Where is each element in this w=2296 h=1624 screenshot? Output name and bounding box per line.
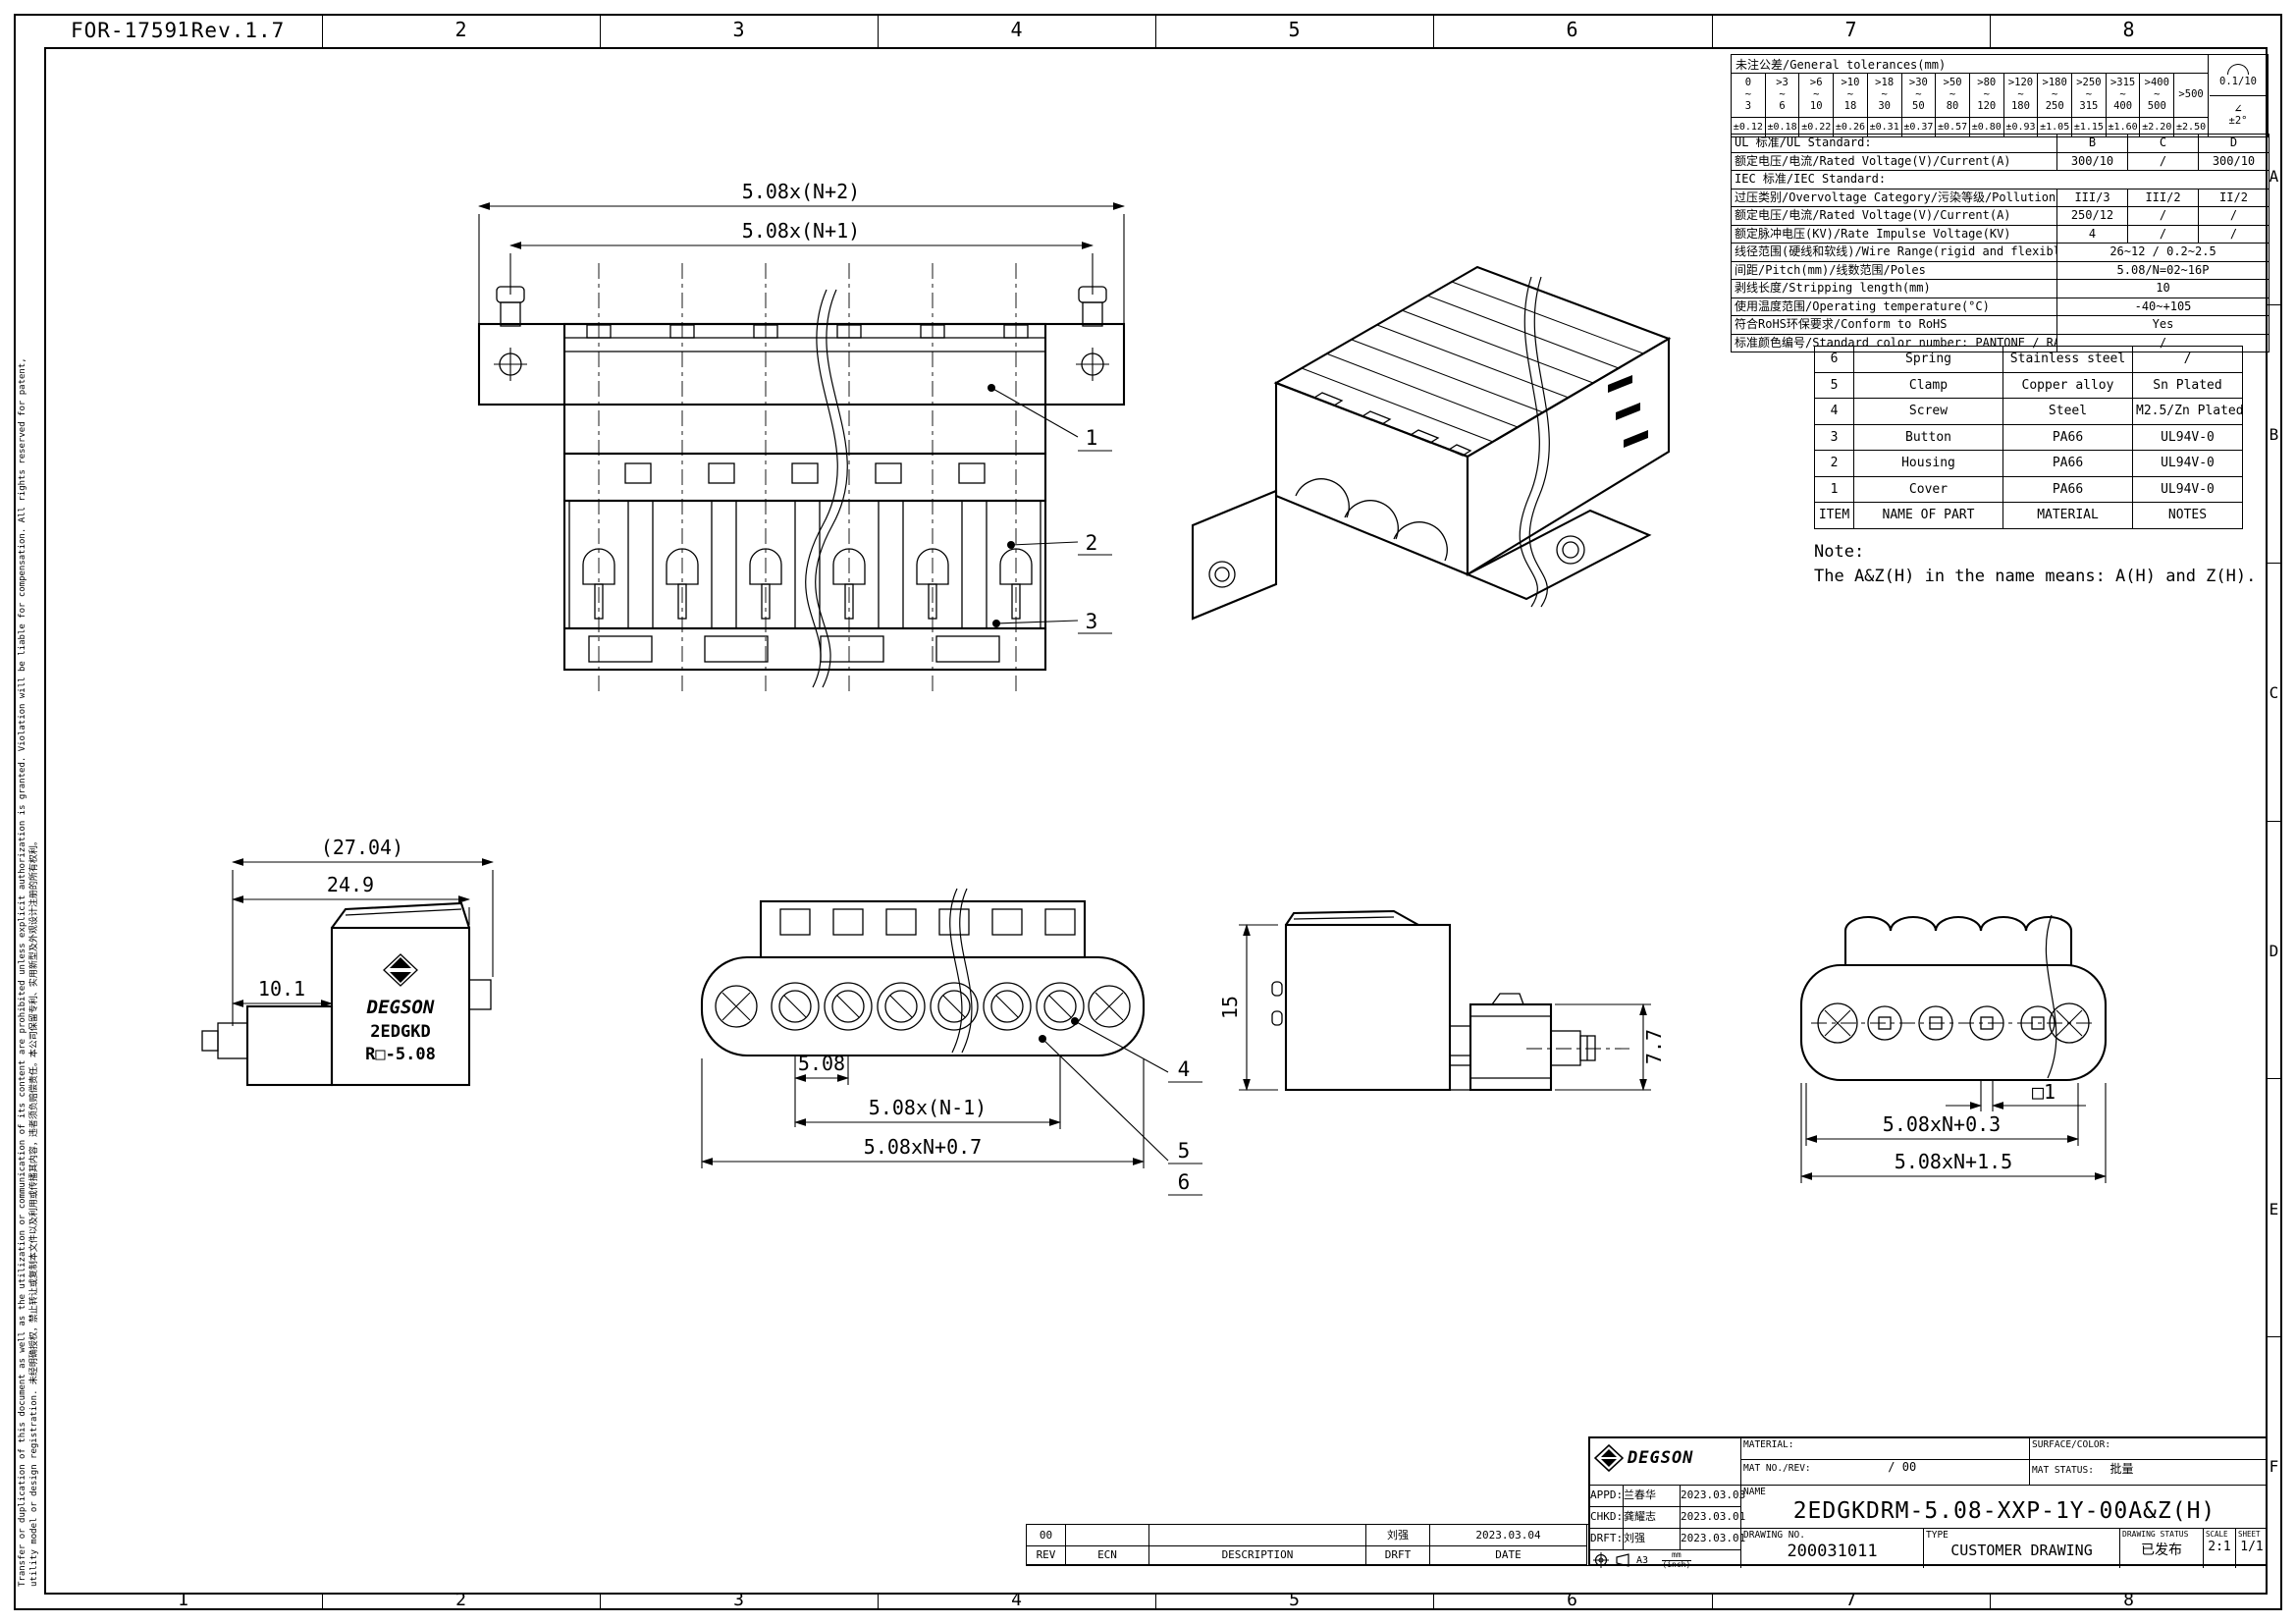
flatness-value: 0.1/10 [2219,76,2257,87]
appd-date: 2023.03.03 [1681,1486,1741,1507]
part-name: Housing [1854,451,2003,477]
angle-cell: ∠ ±2° [2210,96,2267,135]
row-label: D [2266,822,2282,1080]
column-label: 7 [1712,18,1990,43]
part-material: Stainless steel [2003,347,2133,373]
general-tolerance-table: 未注公差/General tolerances(mm) 0.1/10 ∠ ±2° [1731,54,2269,137]
ecn-header: ECN [1066,1546,1149,1565]
projection-cell: A3 mm (inch) [1590,1550,1741,1568]
name-label: NAME [1741,1486,2268,1498]
spec-label: 线径范围(硬线和软线)/Wire Range(rigid and flexibl… [1732,244,2057,262]
spec-value: Yes [2057,316,2269,335]
sheet-label: SHEET [2236,1529,2268,1540]
tol-range: >3 ~ 6 [1765,74,1799,118]
third-angle-projection-icon [1615,1553,1630,1567]
column-label: 3 [600,1592,878,1609]
type-value: CUSTOMER DRAWING [1924,1542,2119,1559]
unit-inch: (inch) [1662,1561,1690,1570]
part-item: 3 [1815,424,1854,451]
parts-header-item: ITEM [1815,503,1854,529]
spec-value: II/2 [2199,189,2269,207]
mat-no-label: MAT NO./REV: [1741,1462,1813,1475]
spec-label: 过压类别/Overvoltage Category/污染等级/Pollution… [1732,189,2057,207]
tol-range: >315 ~ 400 [2106,74,2140,118]
specification-table: UL 标准/UL Standard: B C D 额定电压/电流/Rated V… [1731,134,2269,352]
part-notes: UL94V-0 [2133,424,2243,451]
sheet-cell: SHEET 1/1 [2236,1529,2268,1568]
part-notes: UL94V-0 [2133,451,2243,477]
sheet-value: 1/1 [2236,1540,2268,1554]
parts-header-notes: NOTES [2133,503,2243,529]
revision-strip: 00 刘强 2023.03.04 REV ECN DESCRIPTION DRF… [1026,1524,1589,1566]
rev-header: REV [1027,1546,1066,1565]
part-name: Cover [1854,476,2003,503]
tol-range: >80 ~ 120 [1969,74,2003,118]
part-notes: UL94V-0 [2133,476,2243,503]
brand-cell: DEGSON [1590,1438,1741,1486]
spec-label: 额定电压/电流/Rated Voltage(V)/Current(A) [1732,152,2057,171]
spec-value: / [2199,207,2269,226]
tol-range: >400 ~ 500 [2140,74,2174,118]
spec-label: 符合RoHS环保要求/Conform to RoHS [1732,316,2057,335]
rev-value: 00 [1027,1525,1066,1546]
appd-label: APPD: [1590,1486,1624,1507]
type-label: TYPE [1924,1529,2119,1542]
drawing-no-value: 200031011 [1741,1542,1923,1561]
spec-value: / [2128,225,2199,244]
spec-value: / [2199,225,2269,244]
tolerance-title: 未注公差/General tolerances(mm) [1732,55,2209,74]
part-name: Spring [1854,347,2003,373]
tolerance-symbols: 0.1/10 ∠ ±2° [2209,55,2269,137]
part-notes: Sn Plated [2133,372,2243,399]
parts-header-name: NAME OF PART [1854,503,2003,529]
mat-status-value: 批量 [2110,1462,2134,1476]
chkd-date: 2023.03.01 [1681,1507,1741,1529]
spec-value: 250/12 [2057,207,2128,226]
part-notes: M2.5/Zn Plated [2133,399,2243,425]
row-label: C [2266,564,2282,822]
degson-logo-icon [1594,1444,1624,1472]
material-cell: MATERIAL: [1741,1438,2030,1460]
tol-range: >10 ~ 18 [1834,74,1868,118]
drft-label: DRFT: [1590,1529,1624,1550]
spec-label: 额定电压/电流/Rated Voltage(V)/Current(A) [1732,207,2057,226]
spec-value: 26~12 / 0.2~2.5 [2057,244,2269,262]
type-cell: TYPE CUSTOMER DRAWING [1924,1529,2120,1568]
column-label: 2 [322,18,600,43]
description-header: DESCRIPTION [1149,1546,1366,1565]
mat-status-cell: MAT STATUS: 批量 [2030,1460,2268,1486]
tol-range: >30 ~ 50 [1901,74,1936,118]
mat-no-cell: MAT NO./REV: / 00 [1741,1460,2030,1486]
part-item: 4 [1815,399,1854,425]
column-label: 5 [1155,1592,1433,1609]
legal-notice-line-2: utility model or design registration. 未经… [29,70,41,1587]
status-value: 已发布 [2120,1540,2203,1559]
ecn-value [1066,1525,1149,1546]
tol-range: 0 ~ 3 [1732,74,1766,118]
surface-cell: SURFACE/COLOR: [2030,1438,2268,1460]
part-material: PA66 [2003,476,2133,503]
status-label: DRAWING STATUS [2120,1529,2203,1540]
mat-status-label: MAT STATUS: [2030,1464,2096,1477]
rev-drft-value: 刘强 [1366,1525,1430,1546]
chkd-label: CHKD: [1590,1507,1624,1529]
drft-date: 2023.03.01 [1681,1529,1741,1550]
part-name: Button [1854,424,2003,451]
unit-marker: mm (inch) [1662,1551,1691,1570]
spec-label: 剥线长度/Stripping length(mm) [1732,280,2057,298]
status-cell: DRAWING STATUS 已发布 [2120,1529,2204,1568]
brand-name: DEGSON [1628,1448,1693,1468]
spec-section-header: IEC 标准/IEC Standard: [1732,171,2269,189]
spec-col-header: B [2057,135,2128,153]
surface-label: SURFACE/COLOR: [2030,1438,2268,1451]
spec-value: 300/10 [2199,152,2269,171]
part-number: 2EDGKDRM-5.08-XXP-1Y-00A&Z(H) [1741,1498,2268,1524]
spec-value: 4 [2057,225,2128,244]
form-number: FOR-1759 Rev.1.7 [71,19,285,42]
part-material: PA66 [2003,451,2133,477]
mat-no-value: / 00 [1888,1460,1916,1474]
drft-name: 刘强 [1624,1529,1681,1550]
angle-icon: ∠ [2234,105,2242,115]
paper-size: A3 [1636,1555,1648,1566]
chkd-name: 龚耀志 [1624,1507,1681,1529]
column-label: 4 [878,18,1155,43]
column-label: 1 [44,1592,322,1609]
parts-list-table: 6 Spring Stainless steel / 5 Clamp Coppe… [1814,346,2242,529]
spec-label: 间距/Pitch(mm)/线数范围/Poles [1732,261,2057,280]
tol-range: >18 ~ 30 [1867,74,1901,118]
drawing-no-cell: DRAWING NO. 200031011 [1741,1529,1924,1568]
column-label: 5 [1155,18,1433,43]
column-label: 7 [1712,1592,1990,1609]
tol-range: >50 ~ 80 [1936,74,1970,118]
note-title: Note: [1814,540,2256,565]
tol-range: >500 [2174,74,2209,118]
column-label: 8 [1990,18,2268,43]
tol-range: >120 ~ 180 [2003,74,2038,118]
spec-value: 300/10 [2057,152,2128,171]
part-material: Copper alloy [2003,372,2133,399]
part-notes: / [2133,347,2243,373]
date-header: DATE [1430,1546,1587,1565]
part-item: 6 [1815,347,1854,373]
spec-value: / [2128,152,2199,171]
drawing-no-label: DRAWING NO. [1741,1529,1923,1542]
spec-col-header: C [2128,135,2199,153]
part-material: PA66 [2003,424,2133,451]
rev-date-value: 2023.03.04 [1430,1525,1587,1546]
scale-label: SCALE [2204,1529,2235,1540]
part-name-cell: NAME 2EDGKDRM-5.08-XXP-1Y-00A&Z(H) [1741,1486,2268,1529]
row-label: E [2266,1080,2282,1338]
column-label: 6 [1433,18,1711,43]
spec-value: -40~+105 [2057,298,2269,316]
legal-notice-line-1: Transfer or duplication of this document… [18,70,29,1587]
first-angle-projection-icon [1593,1552,1609,1568]
column-label: 6 [1433,1592,1711,1609]
material-label: MATERIAL: [1741,1438,2029,1451]
column-label: 3 [600,18,878,43]
title-block: DEGSON APPD: 兰春华 2023.03.03 CHKD: 龚耀志 20… [1588,1436,2268,1566]
scale-value: 2:1 [2204,1540,2235,1554]
description-value [1149,1525,1366,1546]
spec-value: 5.08/N=02~16P [2057,261,2269,280]
row-label: F [2266,1338,2282,1595]
spec-label: 额定脉冲电压(KV)/Rate Impulse Voltage(KV) [1732,225,2057,244]
part-material: Steel [2003,399,2133,425]
part-name: Screw [1854,399,2003,425]
column-label: 2 [322,1592,600,1609]
flatness-cell: 0.1/10 [2210,56,2267,96]
part-name: Clamp [1854,372,2003,399]
spec-value: / [2128,207,2199,226]
spec-value: III/2 [2128,189,2199,207]
spec-col-header: D [2199,135,2269,153]
note-block: Note: The A&Z(H) in the name means: A(H)… [1814,540,2256,588]
tol-range: >250 ~ 315 [2072,74,2107,118]
part-item: 2 [1815,451,1854,477]
spec-label: UL 标准/UL Standard: [1732,135,2057,153]
flatness-icon [2227,64,2249,75]
angle-value: ±2° [2229,115,2248,127]
column-label: 4 [878,1592,1155,1609]
part-item: 1 [1815,476,1854,503]
column-label: 8 [1990,1592,2268,1609]
spec-value: III/3 [2057,189,2128,207]
legal-notice: Transfer or duplication of this document… [18,70,40,1587]
spec-label: 使用温度范围/Operating temperature(°C) [1732,298,2057,316]
parts-header-material: MATERIAL [2003,503,2133,529]
part-item: 5 [1815,372,1854,399]
scale-cell: SCALE 2:1 [2204,1529,2236,1568]
spec-value: 10 [2057,280,2269,298]
tol-range: >6 ~ 10 [1799,74,1834,118]
drft-header: DRFT [1366,1546,1430,1565]
tol-range: >180 ~ 250 [2038,74,2072,118]
note-body: The A&Z(H) in the name means: A(H) and Z… [1814,565,2256,589]
appd-name: 兰春华 [1624,1486,1681,1507]
